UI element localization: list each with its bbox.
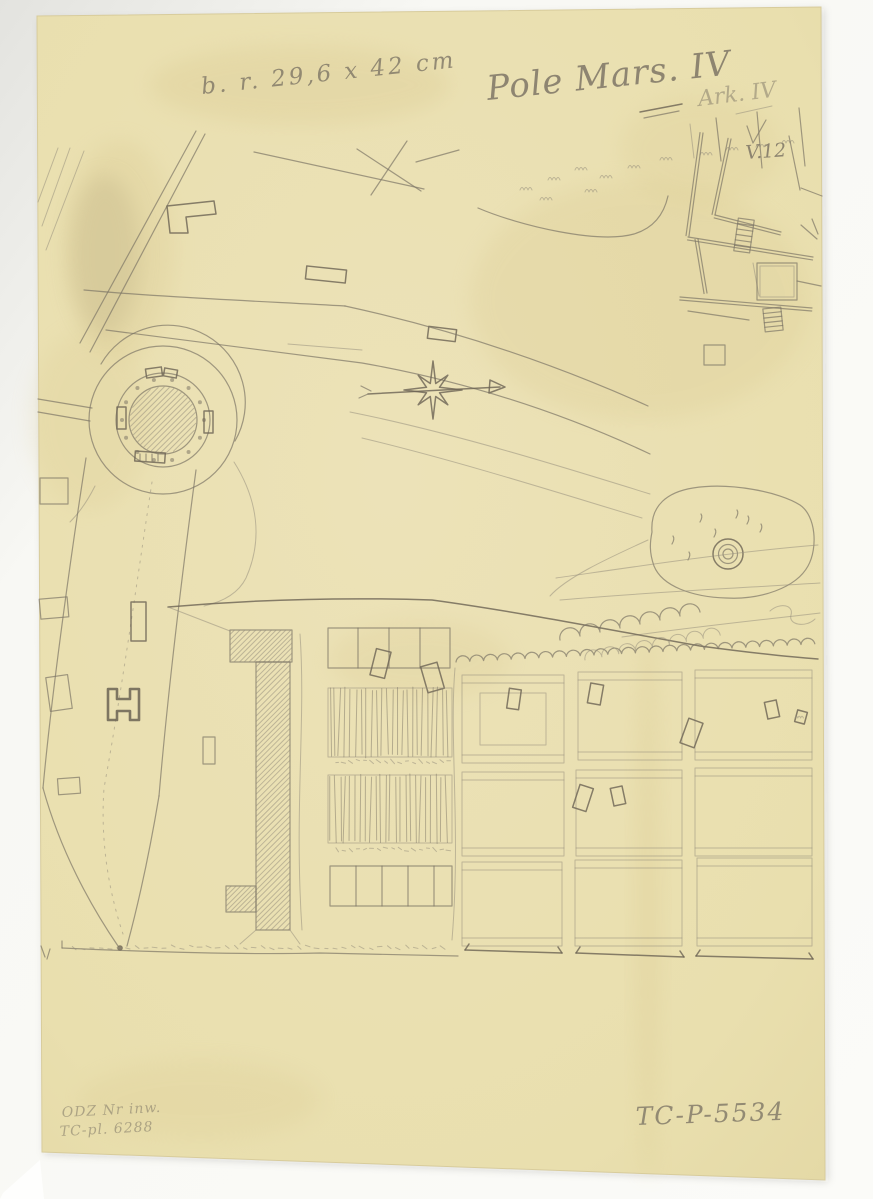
annotation-check-number: V.12 xyxy=(745,139,787,164)
annotation-catalog-number: TC-P-5534 xyxy=(635,1097,786,1131)
plan-drawing-svg: b. r. 29,6 x 42 cm Pole Mars. IV Ark. IV… xyxy=(0,0,873,1199)
scanned-plan-pole-mars: b. r. 29,6 x 42 cm Pole Mars. IV Ark. IV… xyxy=(0,0,873,1199)
